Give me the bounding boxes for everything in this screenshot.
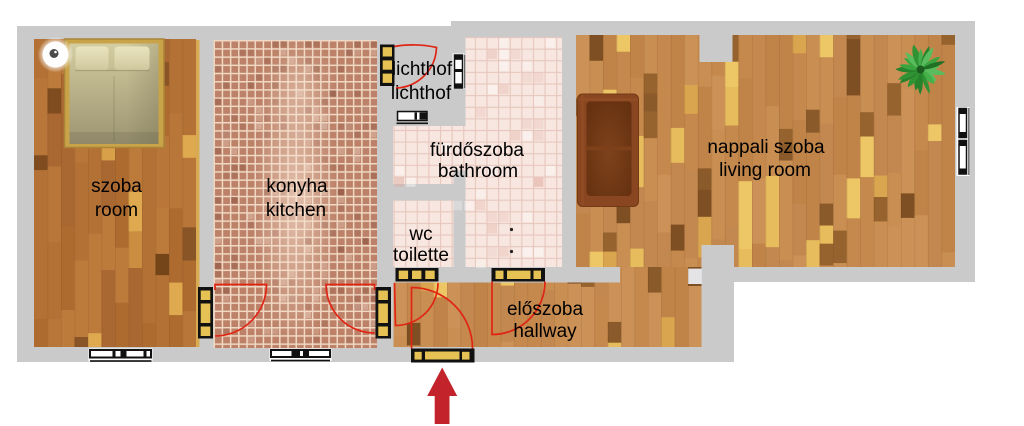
svg-text:hallway: hallway <box>513 321 577 342</box>
svg-text:bathroom: bathroom <box>438 161 518 182</box>
svg-text:konyha: konyha <box>266 176 328 197</box>
svg-text:toilette: toilette <box>393 245 449 266</box>
svg-text:lichthof: lichthof <box>391 83 452 104</box>
svg-text:fürdőszoba: fürdőszoba <box>430 140 524 161</box>
svg-text:wc: wc <box>408 224 432 245</box>
svg-text:living room: living room <box>719 160 811 181</box>
svg-text:nappali szoba: nappali szoba <box>707 137 825 158</box>
svg-text:szoba: szoba <box>91 176 142 197</box>
svg-text:előszoba: előszoba <box>507 299 583 320</box>
svg-text:lichthof: lichthof <box>392 59 453 80</box>
svg-text:kitchen: kitchen <box>266 200 326 221</box>
svg-text:room: room <box>95 200 138 221</box>
